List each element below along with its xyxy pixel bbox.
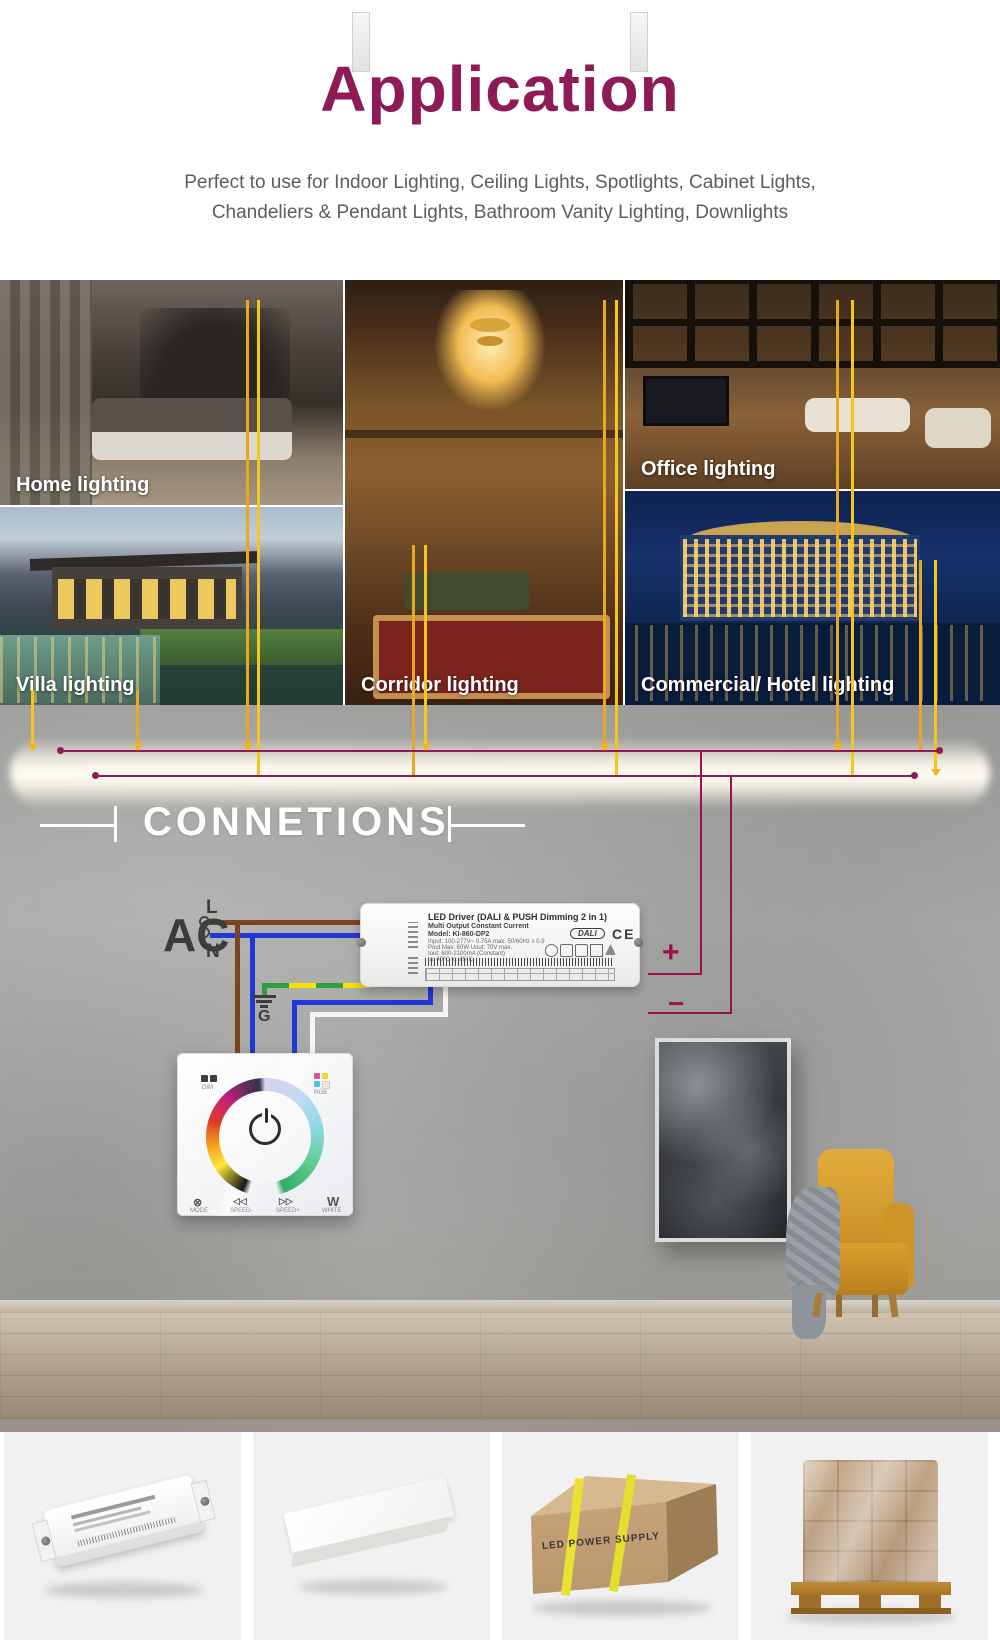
armchair [790, 1145, 920, 1320]
wire-live [210, 920, 370, 925]
driver-model: Model: KI-860-DP2 [428, 931, 489, 938]
mode-label: MODE [190, 1208, 208, 1214]
white-icon: W [327, 1194, 339, 1209]
output-wire-minus [730, 775, 732, 1012]
rgb-square [322, 1081, 330, 1089]
certification-icon [545, 944, 558, 957]
overlay-wire-yellow [603, 300, 606, 750]
product-thumb-driver [4, 1432, 241, 1640]
pallet-photo [791, 1450, 951, 1625]
overlay-wire-yellow [31, 690, 34, 750]
wire-dali-blue [292, 1000, 297, 1055]
speed-minus-label: SPEED- [230, 1208, 252, 1214]
photo-label-office: Office lighting [641, 458, 775, 481]
pallet-foot [919, 1595, 941, 1608]
chandelier-tiers-shape [470, 318, 510, 332]
product-thumb-carton: LED POWER SUPPLY [502, 1432, 739, 1640]
product-thumb-enclosure [253, 1432, 490, 1640]
screw-icon [357, 938, 366, 947]
product-marketing-page: Application Perfect to use for Indoor Li… [0, 0, 1000, 1640]
chandelier-tier2-shape [477, 336, 503, 346]
line-terminal-label: L [206, 897, 218, 919]
bus-endpoint-dot [57, 747, 64, 754]
subtitle-line-2: Chandeliers & Pendant Lights, Bathroom V… [212, 202, 788, 223]
rgb-square [314, 1073, 320, 1079]
rgb-square [322, 1073, 328, 1079]
driver-current-table [425, 968, 615, 981]
sofa-white-shape [805, 398, 910, 432]
wire-arrow-icon [421, 744, 431, 751]
dim-square [201, 1075, 208, 1082]
pallet-foot [859, 1595, 881, 1608]
photo-villa-lighting: Villa lighting [0, 507, 343, 705]
touch-panel-dimmer: DIM RGB ⊗ MODE ◁◁ SPEED- ▷▷ SPEED+ W WHI… [177, 1053, 353, 1216]
terminal-circle [199, 916, 210, 927]
wire-ground-drop [262, 983, 267, 995]
overlay-wire-yellow [424, 545, 427, 750]
coffered-ceiling-shape [625, 280, 1000, 368]
driver-dip-switch-strip [425, 958, 613, 966]
wire-dali-white [443, 985, 448, 1015]
certification-icon [590, 944, 603, 957]
wire-dali-white [310, 1012, 448, 1017]
bed-shape [92, 398, 292, 460]
wire-arrow-icon [931, 769, 941, 776]
driver-subtitle: Multi Output Constant Current [428, 923, 529, 930]
balcony-rail-shape [345, 430, 623, 438]
power-icon-bar [265, 1108, 268, 1123]
product-shadow [298, 1580, 448, 1594]
power-icon [249, 1113, 281, 1145]
certification-icon [575, 944, 588, 957]
overlay-wire-yellow [836, 300, 839, 750]
output-bus-line [95, 775, 915, 777]
sofa-white2-shape [925, 408, 991, 448]
wall-art-frame [655, 1038, 791, 1242]
driver-product-body [43, 1475, 205, 1568]
page-subtitle: Perfect to use for Indoor Lighting, Ceil… [0, 168, 1000, 228]
overlay-wire-yellow [136, 690, 139, 750]
driver-side-markings [408, 954, 418, 974]
output-wire-plus [648, 973, 702, 975]
output-wire-minus [648, 1012, 732, 1014]
minus-label: − [668, 988, 684, 1020]
wire-arrow-icon [133, 744, 143, 751]
terminal-circle [199, 927, 210, 938]
overlay-wire-yellow [412, 545, 415, 775]
wire-ground [262, 983, 370, 988]
output-bus-line [60, 750, 940, 752]
driver-side-markings [408, 922, 418, 948]
wire-dali-white [310, 1012, 315, 1055]
photo-label-commercial: Commercial/ Hotel lighting [641, 674, 894, 697]
white-label: WHITE [322, 1208, 341, 1214]
output-wire-plus [700, 750, 702, 973]
overlay-wire-yellow [257, 300, 260, 775]
overlay-wire-yellow [615, 300, 618, 775]
certification-icon [560, 944, 573, 957]
chair-leg [872, 1295, 878, 1317]
wire-live-drop [235, 920, 240, 1055]
overlay-wire-yellow [851, 300, 854, 775]
enclosure-product-photo [283, 1476, 462, 1573]
wire-arrow-icon [28, 744, 38, 751]
connections-heading: CONNETIONS [143, 800, 450, 845]
photo-office-lighting: Office lighting [625, 280, 1000, 489]
pallet-runner [791, 1608, 951, 1614]
rgb-label: RGB [314, 1090, 327, 1096]
wire-arrow-icon [600, 744, 610, 751]
hotel-windows-shape [683, 539, 917, 617]
blanket [786, 1187, 840, 1299]
overlay-wire-yellow [919, 560, 922, 750]
product-shadow [44, 1582, 204, 1598]
wire-neutral [210, 933, 370, 938]
shrink-wrap-sheen [803, 1460, 938, 1582]
photo-home-lighting: Home lighting [0, 280, 343, 505]
photo-label-home: Home lighting [16, 474, 149, 497]
driver-product-photo [28, 1466, 220, 1577]
pallet-deck [791, 1582, 951, 1595]
wire-arrow-icon [243, 744, 253, 751]
overlay-wire-yellow [934, 560, 937, 775]
chandelier-glow-shape [435, 290, 545, 410]
ground-label: G [258, 1008, 270, 1026]
dim-square [210, 1075, 217, 1082]
ce-mark: CE [612, 926, 635, 942]
dali-mark: DALI [570, 928, 605, 939]
curtain-shape [0, 280, 92, 505]
speed-minus-icon: ◁◁ [233, 1196, 247, 1207]
plus-label: + [662, 936, 680, 970]
photo-commercial-lighting: Commercial/ Hotel lighting [625, 491, 1000, 705]
rgb-square [314, 1081, 320, 1087]
chair-leg [888, 1293, 898, 1318]
subtitle-line-1: Perfect to use for Indoor Lighting, Ceil… [184, 172, 816, 193]
driver-mounting-tab [630, 12, 648, 72]
photo-label-corridor: Corridor lighting [361, 674, 519, 697]
led-strip-glow [10, 738, 990, 808]
carton-box-photo: LED POWER SUPPLY [516, 1454, 726, 1614]
lit-windows-shape [58, 579, 236, 619]
ground-icon [252, 995, 276, 998]
photo-corridor-lighting: Corridor lighting [345, 280, 623, 705]
wire-neutral-drop [250, 933, 255, 1055]
chair-leg [836, 1295, 842, 1317]
overlay-wire-yellow [246, 300, 249, 750]
wire-dali-blue [292, 1000, 433, 1005]
bus-endpoint-dot [911, 772, 918, 779]
heading-decor-line [40, 824, 114, 827]
tv-shape [643, 376, 729, 426]
dim-label: DIM [202, 1085, 213, 1091]
page-title: Application [0, 52, 1000, 126]
lawn-shape [140, 629, 343, 665]
ground-icon [256, 1000, 272, 1003]
heading-decor-line [451, 824, 525, 827]
wire-arrow-icon [833, 744, 843, 751]
product-thumb-pallet [751, 1432, 988, 1640]
neutral-terminal-label: N [206, 941, 220, 963]
wood-floor [0, 1312, 1000, 1420]
speed-plus-icon: ▷▷ [279, 1196, 293, 1207]
bus-endpoint-dot [936, 747, 943, 754]
speed-plus-label: SPEED+ [276, 1208, 300, 1214]
driver-mounting-tab [352, 12, 370, 72]
driver-title: LED Driver (DALI & PUSH Dimming 2 in 1) [428, 912, 607, 922]
pallet-foot [799, 1595, 821, 1608]
bus-endpoint-dot [92, 772, 99, 779]
heading-decor-tick [114, 806, 117, 842]
